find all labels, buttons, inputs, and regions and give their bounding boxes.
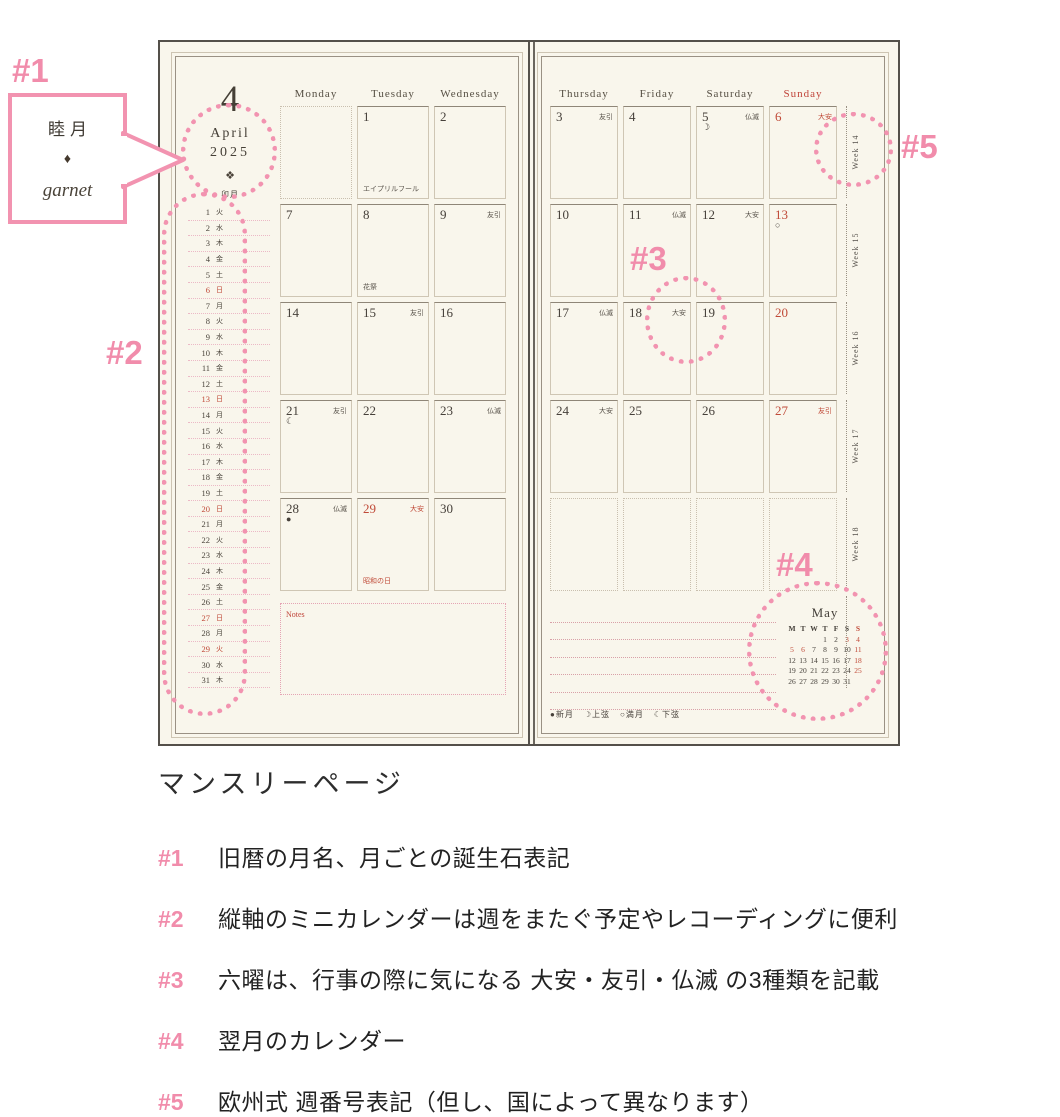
ruled-line: [550, 658, 776, 676]
weekday-header: Tuesday: [357, 88, 429, 100]
day-cell: 16: [434, 302, 506, 395]
feature-item: #1旧暦の月名、月ごとの誕生石表記: [158, 839, 998, 873]
day-cell: 27友引: [769, 400, 837, 493]
day-cell: 29大安昭和の日: [357, 498, 429, 591]
caption-block: マンスリーページ #1旧暦の月名、月ごとの誕生石表記#2縦軸のミニカレンダーは週…: [158, 762, 998, 1117]
day-cell: 2: [434, 106, 506, 199]
day-cell: 25: [623, 400, 691, 493]
moon-legend-item: ○満月: [620, 710, 644, 719]
feature-item: #5欧州式 週番号表記（但し、国によって異なります）: [158, 1083, 998, 1117]
day-cell: 10: [550, 204, 618, 297]
ruled-lines: [550, 605, 776, 710]
empty-day-cell: [623, 498, 691, 591]
feature-tag: #2: [158, 906, 200, 933]
annotation-label-3: #3: [630, 240, 667, 278]
day-cell: 8花祭: [357, 204, 429, 297]
day-cell: 5仏滅☽: [696, 106, 764, 199]
callout-arrow: [123, 127, 189, 193]
rokuyo-label: 友引: [599, 112, 613, 122]
week-number-label: Week 16: [851, 330, 860, 365]
feature-tag: #4: [158, 1028, 200, 1055]
diamond-icon: ♦: [64, 153, 71, 167]
day-cell: 15友引: [357, 302, 429, 395]
day-cell: 4: [623, 106, 691, 199]
moon-phase-icon: ○: [770, 221, 836, 230]
week-segment: Week 15: [844, 204, 870, 296]
feature-tag: #1: [158, 845, 200, 872]
caption-title: マンスリーページ: [158, 762, 998, 801]
annotation-label-4: #4: [776, 546, 813, 584]
moon-legend-item: ●新月: [550, 710, 574, 719]
day-cell: 3友引: [550, 106, 618, 199]
feature-tag: #5: [158, 1089, 200, 1116]
day-note: エイプリルフール: [363, 184, 419, 194]
feature-text: 翌月のカレンダー: [218, 1022, 406, 1056]
callout-birthstone-name: garnet: [43, 180, 93, 202]
ruled-line: [550, 605, 776, 623]
rokuyo-label: 大安: [745, 210, 759, 220]
ruled-line: [550, 693, 776, 711]
day-cell: 9友引: [434, 204, 506, 297]
moon-legend-item: ☾下弦: [654, 710, 680, 719]
highlight-circle-month: [181, 103, 277, 199]
moon-legend-item: ☽上弦: [584, 710, 610, 719]
feature-text: 欧州式 週番号表記（但し、国によって異なります）: [218, 1083, 764, 1117]
empty-day-cell: [696, 498, 764, 591]
day-cell: 1エイプリルフール: [357, 106, 429, 199]
day-cell: 20: [769, 302, 837, 395]
feature-text: 縦軸のミニカレンダーは週をまたぐ予定やレコーディングに便利: [218, 900, 898, 934]
rokuyo-label: 仏滅: [599, 308, 613, 318]
empty-day-cell: [550, 498, 618, 591]
feature-item: #2縦軸のミニカレンダーは週をまたぐ予定やレコーディングに便利: [158, 900, 998, 934]
week-number-label: Week 17: [851, 428, 860, 463]
weekday-header: Friday: [623, 88, 691, 100]
rokuyo-label: 大安: [410, 504, 424, 514]
annotation-label-2: #2: [106, 334, 143, 372]
feature-list: #1旧暦の月名、月ごとの誕生石表記#2縦軸のミニカレンダーは週をまたぐ予定やレコ…: [158, 839, 998, 1117]
moon-phase-icon: ☾: [281, 417, 351, 426]
notes-label: Notes: [286, 610, 305, 619]
weekday-header: Wednesday: [434, 88, 506, 100]
rokuyo-label: 友引: [818, 406, 832, 416]
day-cell: 22: [357, 400, 429, 493]
day-cell: 26: [696, 400, 764, 493]
feature-tag: #3: [158, 967, 200, 994]
highlight-circle-rokuyo: [645, 276, 727, 364]
binding: [528, 42, 535, 744]
day-cell: 7: [280, 204, 352, 297]
annotation-label-5: #5: [901, 128, 938, 166]
rokuyo-label: 大安: [599, 406, 613, 416]
moon-phase-icon: ☽: [697, 123, 763, 132]
annotation-label-1: #1: [12, 52, 49, 90]
rokuyo-label: 仏滅: [333, 504, 347, 514]
highlight-circle-next-month: [747, 581, 888, 721]
moon-phase-icon: ●: [281, 515, 351, 524]
day-cell: 14: [280, 302, 352, 395]
moon-phase-legend: ●新月☽上弦○満月☾下弦: [550, 709, 690, 720]
rokuyo-label: 友引: [410, 308, 424, 318]
callout-birthstone: 睦月 ♦ garnet: [8, 93, 127, 224]
day-cell: 21友引☾: [280, 400, 352, 493]
day-cell: 28仏滅●: [280, 498, 352, 591]
rokuyo-label: 仏滅: [672, 210, 686, 220]
week-number-label: Week 18: [851, 526, 860, 561]
weekday-headers-right: ThursdayFridaySaturdaySunday: [550, 88, 837, 100]
ruled-line: [550, 675, 776, 693]
callout-old-month: 睦月: [43, 115, 92, 140]
notes-area: Notes: [280, 603, 506, 695]
highlight-circle-week-number: [814, 112, 893, 187]
calendar-grid-left: 1エイプリルフール278花祭9友引1415友引1621友引☾2223仏滅28仏滅…: [280, 106, 506, 591]
highlight-oval-mini-calendar: [162, 192, 247, 716]
weekday-header: Monday: [280, 88, 352, 100]
weekday-header: Sunday: [769, 88, 837, 100]
rokuyo-label: 仏滅: [487, 406, 501, 416]
rokuyo-label: 友引: [487, 210, 501, 220]
ruled-line: [550, 623, 776, 641]
weekday-headers-left: MondayTuesdayWednesday: [280, 88, 506, 100]
day-cell: 13○: [769, 204, 837, 297]
weekday-header: Thursday: [550, 88, 618, 100]
rokuyo-label: 友引: [333, 406, 347, 416]
day-note: 花祭: [363, 282, 377, 292]
feature-item: #3六曜は、行事の際に気になる 大安・友引・仏滅 の3種類を記載: [158, 961, 998, 995]
feature-text: 旧暦の月名、月ごとの誕生石表記: [218, 839, 570, 873]
week-segment: Week 18: [844, 498, 870, 590]
day-cell: 23仏滅: [434, 400, 506, 493]
week-segment: Week 16: [844, 302, 870, 394]
week-segment: Week 17: [844, 400, 870, 492]
empty-day-cell: [280, 106, 352, 199]
feature-text: 六曜は、行事の際に気になる 大安・友引・仏滅 の3種類を記載: [218, 961, 880, 995]
week-number-label: Week 15: [851, 232, 860, 267]
ruled-line: [550, 640, 776, 658]
day-cell: 24大安: [550, 400, 618, 493]
day-cell: 30: [434, 498, 506, 591]
day-note: 昭和の日: [363, 576, 391, 586]
weekday-header: Saturday: [696, 88, 764, 100]
feature-item: #4翌月のカレンダー: [158, 1022, 998, 1056]
rokuyo-label: 仏滅: [745, 112, 759, 122]
day-cell: 17仏滅: [550, 302, 618, 395]
